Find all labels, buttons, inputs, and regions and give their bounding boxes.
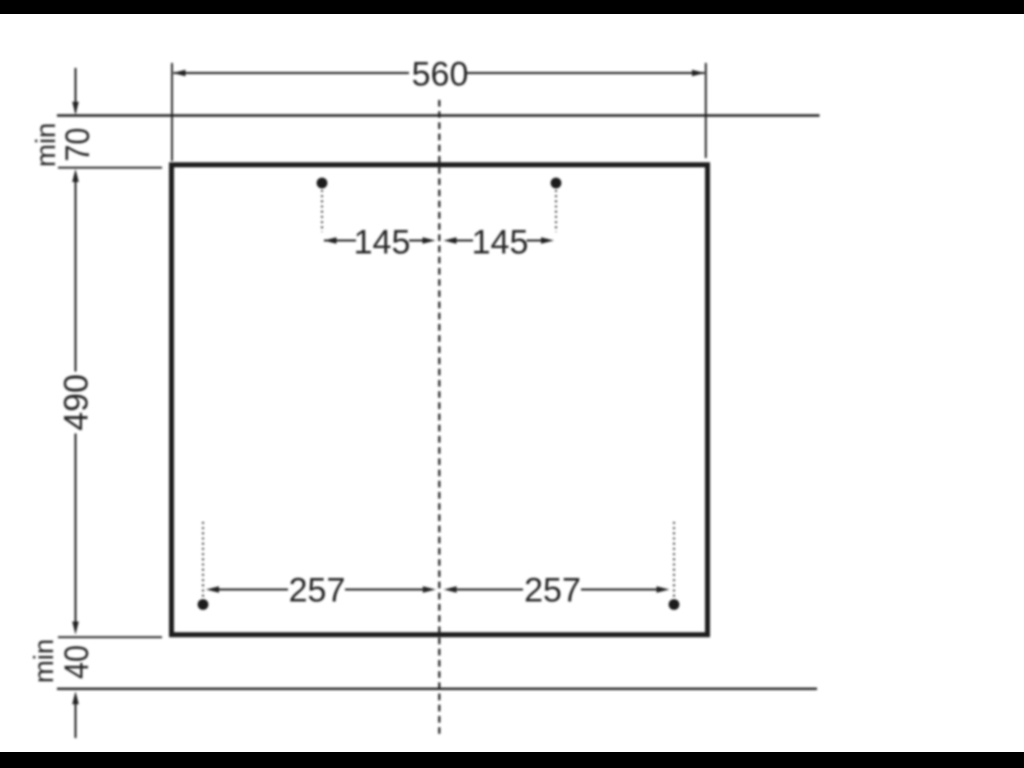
- svg-text:min: min: [30, 123, 61, 167]
- svg-text:min: min: [28, 639, 59, 683]
- svg-text:70: 70: [59, 128, 97, 162]
- svg-text:40: 40: [58, 645, 96, 679]
- svg-text:145: 145: [354, 224, 411, 262]
- svg-text:560: 560: [412, 56, 469, 94]
- svg-text:257: 257: [289, 572, 346, 610]
- svg-text:145: 145: [472, 224, 529, 262]
- svg-text:257: 257: [524, 572, 581, 610]
- svg-text:490: 490: [58, 374, 96, 431]
